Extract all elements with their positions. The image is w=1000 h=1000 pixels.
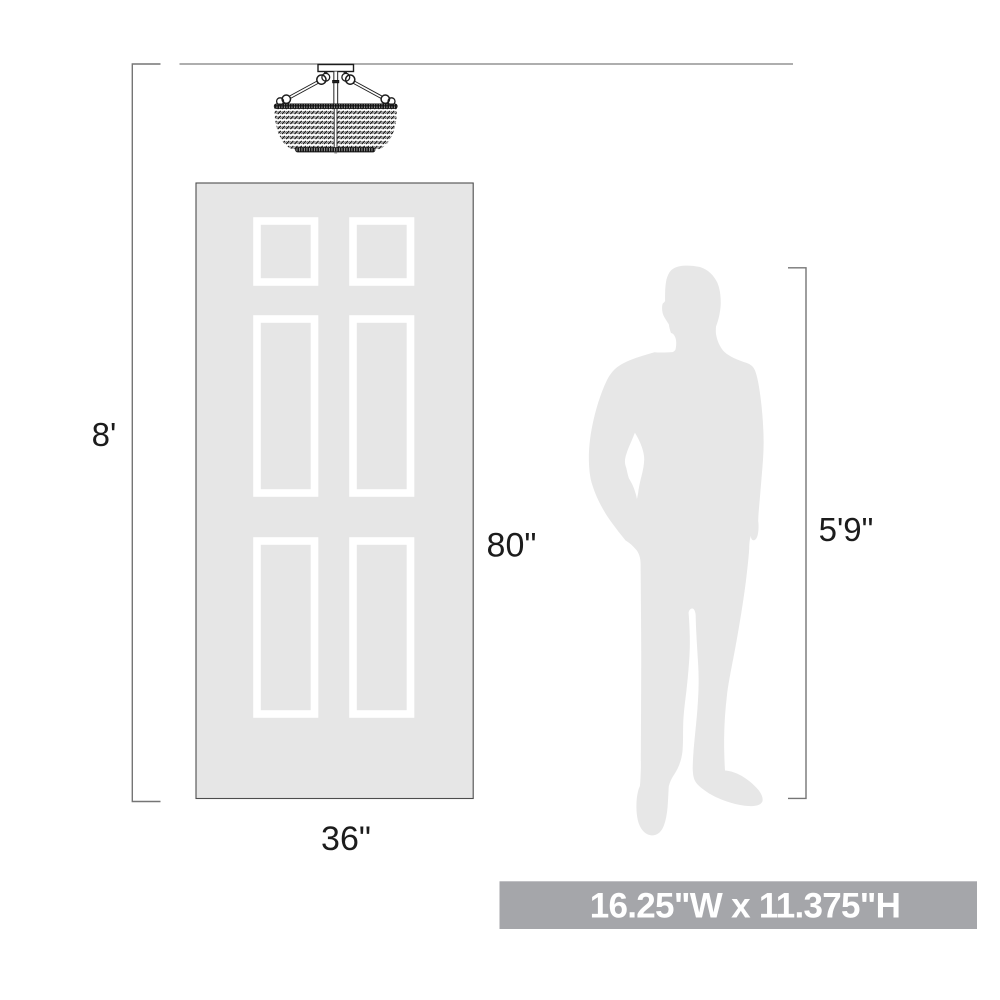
svg-text:80": 80" xyxy=(487,527,537,565)
svg-text:36": 36" xyxy=(321,820,371,858)
svg-text:8': 8' xyxy=(92,416,117,453)
svg-text:16.25"W x 11.375"H: 16.25"W x 11.375"H xyxy=(590,887,901,926)
svg-text:5'9": 5'9" xyxy=(819,511,874,548)
